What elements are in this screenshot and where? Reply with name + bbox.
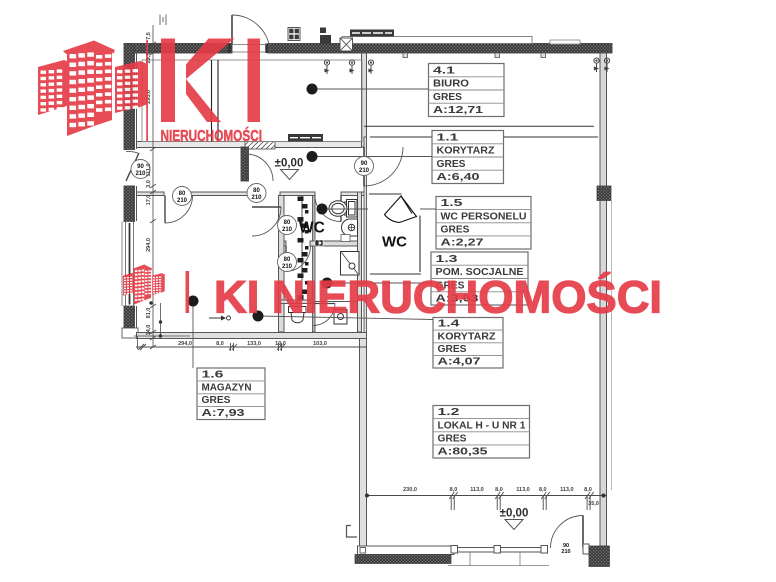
svg-text:113,0: 113,0: [516, 487, 529, 493]
svg-text:17,0: 17,0: [146, 195, 152, 206]
svg-text:90: 90: [361, 161, 368, 167]
svg-text:80: 80: [284, 257, 291, 263]
svg-text:8,0: 8,0: [495, 487, 503, 493]
svg-text:KI NIERUCHOMOŚCI: KI NIERUCHOMOŚCI: [214, 272, 662, 323]
svg-text:35,0: 35,0: [588, 501, 599, 507]
svg-text:210: 210: [251, 195, 262, 201]
svg-text:113,0: 113,0: [470, 487, 483, 493]
svg-text:8,0: 8,0: [450, 487, 458, 493]
svg-text:GRES: GRES: [438, 433, 467, 445]
svg-text:MAGAZYN: MAGAZYN: [202, 381, 252, 393]
svg-text:1.2: 1.2: [438, 406, 460, 418]
svg-text:230,0: 230,0: [403, 487, 417, 493]
svg-text:NIERUCHOMOŚCI: NIERUCHOMOŚCI: [161, 126, 263, 145]
svg-text:8,0: 8,0: [539, 487, 547, 493]
svg-text:KORYTARZ: KORYTARZ: [438, 330, 497, 342]
svg-text:GRES: GRES: [438, 343, 467, 355]
svg-text:GRES: GRES: [441, 224, 470, 236]
svg-text:210: 210: [282, 227, 293, 233]
svg-text:90: 90: [137, 164, 144, 170]
svg-text:80: 80: [284, 220, 291, 226]
svg-text:8,0: 8,0: [216, 341, 224, 347]
svg-text:294,0: 294,0: [146, 238, 152, 252]
svg-text:GRES: GRES: [437, 158, 466, 170]
svg-text:1.1: 1.1: [437, 131, 459, 143]
svg-text:80: 80: [253, 188, 260, 194]
svg-text:210: 210: [135, 171, 146, 177]
svg-text:BIURO: BIURO: [433, 78, 469, 90]
svg-text:±0,00: ±0,00: [275, 158, 304, 170]
svg-text:210: 210: [282, 264, 293, 270]
svg-text:133,0: 133,0: [247, 341, 261, 347]
svg-text:±0,00: ±0,00: [500, 508, 529, 520]
svg-text:GRES: GRES: [202, 394, 231, 406]
svg-text:GRES: GRES: [433, 91, 462, 103]
svg-text:WC PERSONELU: WC PERSONELU: [441, 210, 527, 222]
svg-text:A:6,40: A:6,40: [437, 171, 480, 183]
svg-text:WC: WC: [299, 220, 325, 237]
svg-text:A:80,35: A:80,35: [438, 446, 488, 458]
svg-text:210: 210: [177, 198, 188, 204]
svg-text:KORYTARZ: KORYTARZ: [437, 145, 496, 157]
svg-text:A:4,07: A:4,07: [438, 356, 481, 368]
svg-text:294,0: 294,0: [178, 341, 192, 347]
svg-text:103,0: 103,0: [313, 341, 327, 347]
svg-text:210: 210: [359, 168, 370, 174]
svg-text:14,0: 14,0: [146, 325, 152, 336]
svg-text:7,5: 7,5: [146, 32, 152, 40]
svg-text:81,0: 81,0: [146, 308, 152, 319]
svg-text:1.3: 1.3: [436, 253, 458, 265]
svg-text:111,0: 111,0: [146, 163, 152, 176]
svg-text:A:12,71: A:12,71: [433, 104, 483, 116]
svg-text:1.5: 1.5: [441, 197, 463, 209]
svg-text:WC: WC: [382, 234, 407, 251]
svg-text:A:7,93: A:7,93: [202, 407, 245, 419]
svg-text:210: 210: [561, 549, 570, 555]
svg-text:80: 80: [179, 191, 186, 197]
svg-text:8,0: 8,0: [584, 487, 592, 493]
svg-text:1.6: 1.6: [202, 369, 224, 381]
svg-text:10,0: 10,0: [275, 341, 286, 347]
svg-text:4.1: 4.1: [433, 64, 455, 76]
svg-text:A:2,27: A:2,27: [441, 237, 484, 249]
svg-text:LOKAL H - U NR 1: LOKAL H - U NR 1: [438, 419, 526, 431]
svg-text:113,0: 113,0: [560, 487, 573, 493]
svg-text:3,0: 3,0: [146, 180, 152, 188]
